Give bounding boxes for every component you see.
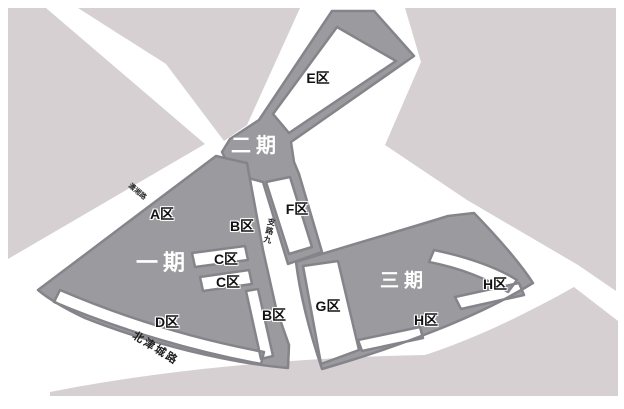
phase-label-3: 三期 bbox=[380, 272, 428, 291]
zone-label-b-lower: B区 bbox=[262, 308, 286, 322]
zone-label-g: G区 bbox=[316, 299, 341, 313]
phase-label-1: 一期 bbox=[136, 252, 190, 274]
zone-label-d: D区 bbox=[155, 315, 179, 329]
zone-label-h-right: H区 bbox=[483, 277, 507, 291]
phase-label-2: 二期 bbox=[231, 136, 281, 156]
zone-label-b-upper: B区 bbox=[230, 219, 254, 233]
zone-label-c-upper: C区 bbox=[214, 252, 238, 266]
zone-label-a: A区 bbox=[150, 207, 174, 221]
zone-label-h-lower: H区 bbox=[414, 313, 438, 327]
map-canvas bbox=[0, 0, 624, 409]
zone-label-e: E区 bbox=[306, 71, 329, 85]
zone-label-c-lower: C区 bbox=[216, 275, 240, 289]
zone-map: 二期 一期 三期 E区 A区 B区 F区 C区 C区 D区 B区 G区 H区 H… bbox=[0, 0, 624, 409]
zone-label-f: F区 bbox=[286, 202, 309, 216]
